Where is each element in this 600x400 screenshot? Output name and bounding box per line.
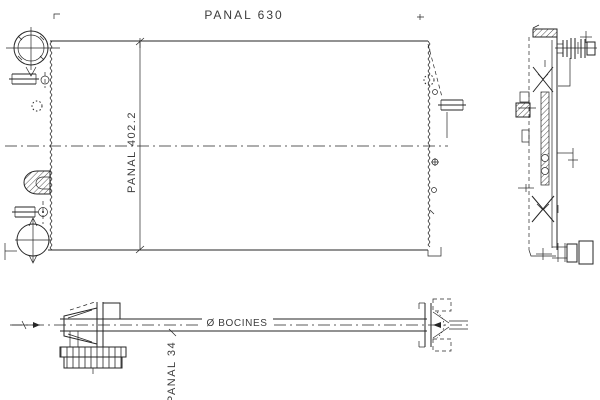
top-hose-connector [555,31,597,86]
outlet-port-bottom-left [5,218,51,263]
bottom-outlet-connector [552,241,593,264]
bottom-view: Ø BOCINES PANAL 34 [10,299,470,400]
radiator-drawing: PANAL 630 PANAL 402.2 [0,0,600,400]
core-height-label: PANAL 402.2 [126,111,138,193]
left-end-fitting [12,302,126,374]
lower-x-brace [532,196,558,222]
right-overflow-fitting [424,44,466,138]
left-fitting-lower [12,201,48,224]
left-mount-boss [24,171,50,194]
core-width-label: PANAL 630 [204,8,283,22]
drain-plug [60,347,126,374]
right-edge-details [430,90,439,215]
core-hatch-column [541,92,549,185]
core-depth-label: PANAL 34 [166,341,178,400]
technical-drawing-page: PANAL 630 PANAL 402.2 [0,0,600,400]
ports-diameter-label: Ø BOCINES [207,318,268,329]
left-mount-tabs [516,92,536,192]
upper-x-brace [533,60,553,92]
depth-dimension [169,329,176,336]
left-fitting-upper [9,72,49,88]
right-step-bracket [557,148,578,168]
left-pin-hole [32,101,42,111]
front-view: PANAL 630 PANAL 402.2 [5,8,466,263]
core-outline [48,41,441,256]
side-view [516,25,597,264]
inlet-port-top-left [6,27,60,76]
